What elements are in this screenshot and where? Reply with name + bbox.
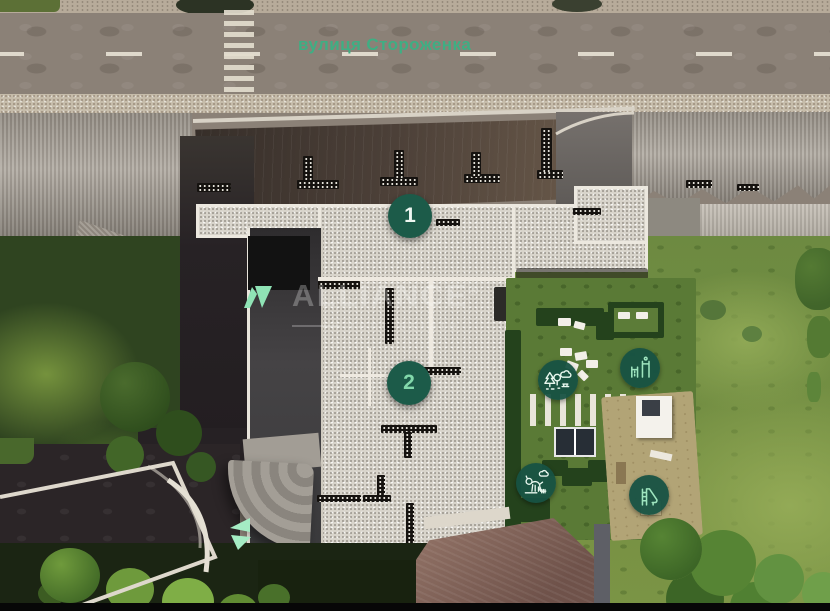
roof-vent [436,219,460,226]
park-trees-icon[interactable] [538,360,578,400]
bush [700,300,726,320]
trees-mid-left [100,362,170,432]
entrance-arrow-icon[interactable] [227,517,253,553]
lounger [586,360,598,368]
lounger [560,348,572,356]
trees-bottom-right [640,518,702,580]
roof-vent [541,128,552,172]
street-name-label: вулиця Стороженка [298,35,471,55]
sidewalk-top [0,0,830,14]
kiosk-roof-panel [642,400,660,416]
sidewalk-bottom [0,94,830,113]
trees-bottom-left [40,548,100,603]
pingpong-table [554,427,596,457]
roof-vent [406,503,414,547]
roof-vent [385,288,394,344]
courtyard-opening [248,236,310,290]
roof-vent [197,183,231,192]
image-edge-bar [0,603,830,611]
existing-roof-right [630,112,830,206]
hedge [505,330,521,534]
lounger [636,312,648,319]
parapet-trim [368,348,371,406]
roof-vent [404,432,412,458]
bushes-right-edge [795,248,830,310]
bush [742,326,762,342]
roof-vent [471,152,481,177]
parapet-trim [429,281,433,377]
workout-bars-icon[interactable] [620,348,660,388]
roof-vent [318,281,360,289]
new-building-roof-stub [574,186,648,244]
lounger [558,318,571,326]
building-marker-2[interactable]: 2 [387,361,431,405]
play-equipment [616,462,626,484]
roof-vent [303,156,313,182]
roof-vent [464,174,500,183]
crosswalk [224,10,254,94]
grass-patch [0,0,60,12]
playground-slide-icon[interactable] [629,475,669,515]
neighbor-roof-edge [594,524,610,611]
roof-vent [573,208,601,215]
roof-vent [377,475,385,497]
building-marker-1[interactable]: 1 [388,194,432,238]
roof-vent [394,150,404,179]
existing-roof-left [0,113,192,238]
roof-vent [686,180,712,188]
lounger [618,312,630,319]
roof-vent [737,184,759,191]
roof-vent [317,495,361,502]
site-plan-aerial-view: вулиця Стороженка ALLIANCE® rent estate … [0,0,830,611]
dog-walk-icon[interactable] [516,463,556,503]
grass-patch [0,438,34,464]
